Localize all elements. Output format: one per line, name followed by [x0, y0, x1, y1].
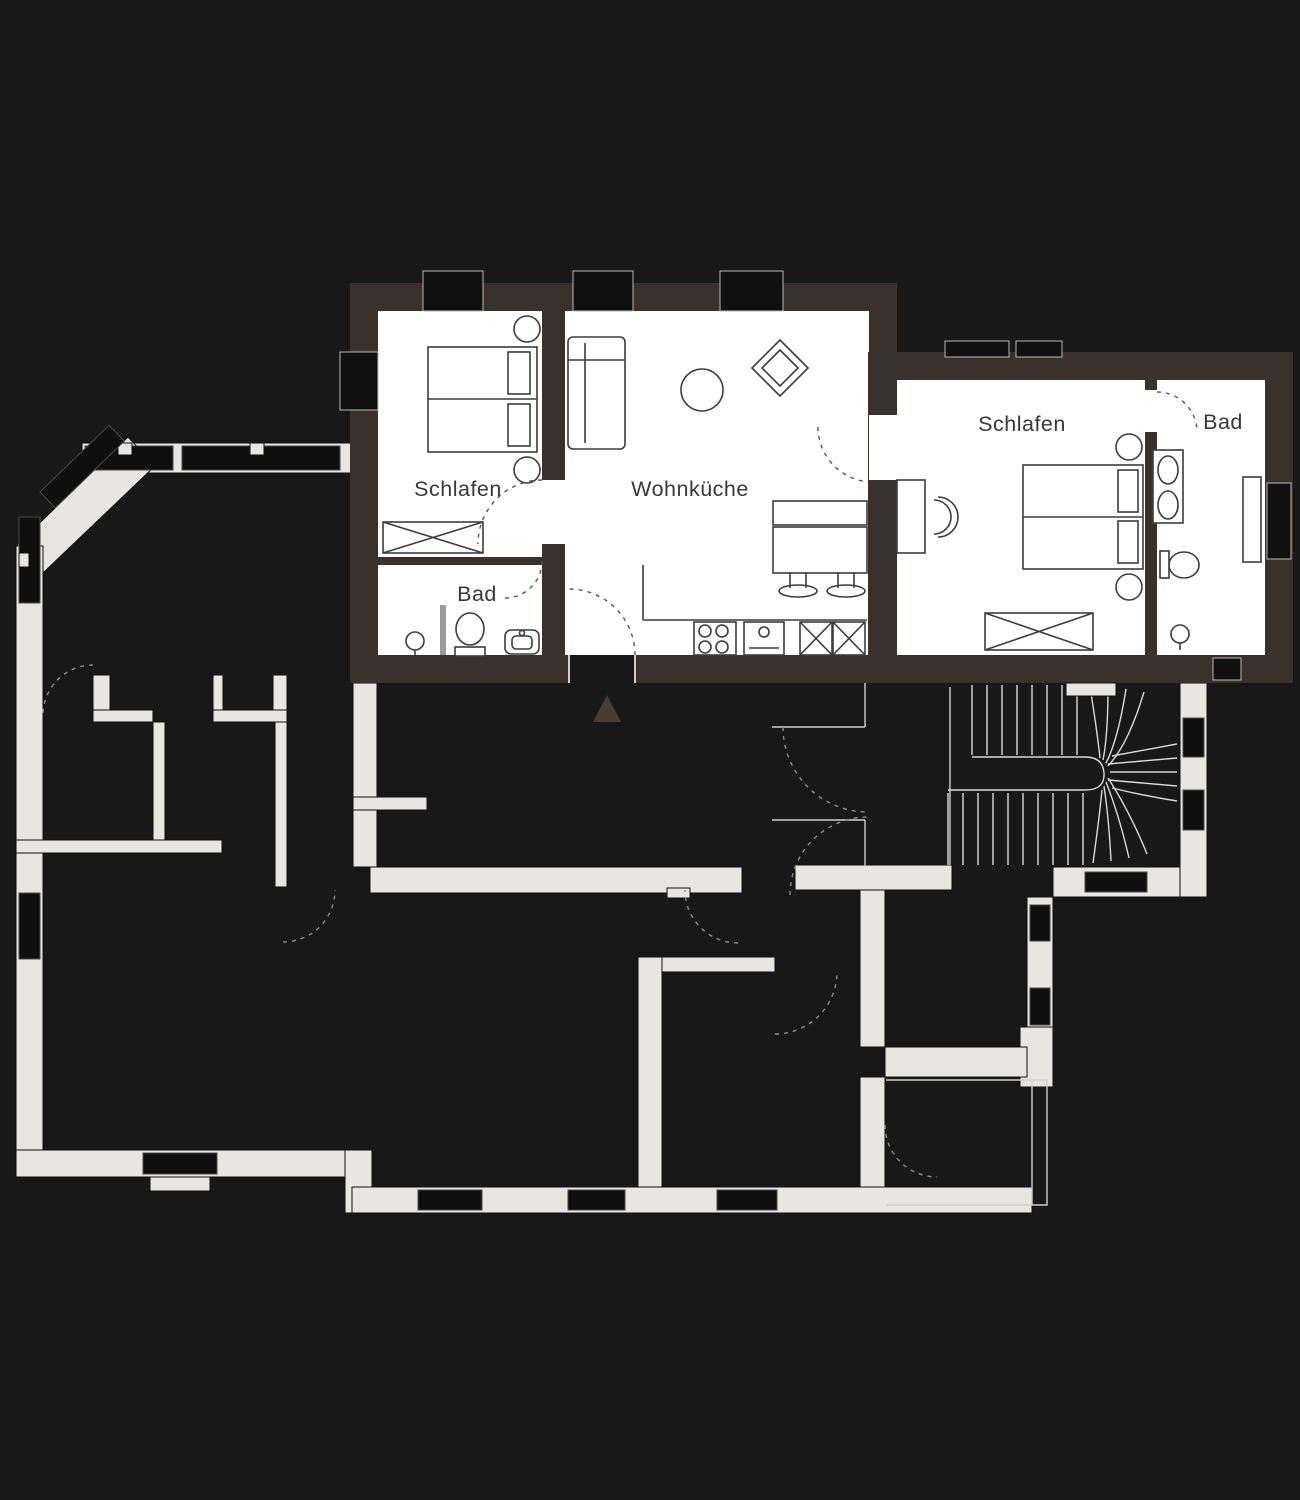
label-schlafen-top: Schlafen: [414, 477, 502, 501]
toilet-icon: [1160, 551, 1199, 578]
oven-icon: [744, 622, 784, 655]
sofa-icon: [568, 337, 625, 449]
entrance-opening: [569, 655, 635, 683]
label-schlafen-right: Schlafen: [978, 412, 1066, 436]
floorplan-canvas: Schlafen Wohnküche Bad: [0, 0, 1300, 1500]
partition-bar: [440, 605, 446, 655]
label-bad-top: Bad: [457, 582, 497, 606]
label-wohnkueche: Wohnküche: [631, 477, 749, 501]
wardrobe-right-icon: [985, 613, 1093, 650]
toilet-icon: [455, 613, 485, 656]
wall-divider-bad: [378, 557, 505, 565]
apartment-right: Schlafen Bad: [868, 341, 1293, 696]
door-opening-right-entry: [869, 415, 897, 480]
label-bad-right: Bad: [1203, 410, 1243, 434]
cabinet-icons: [800, 622, 865, 655]
vanity-counter: [1153, 450, 1183, 523]
apartment-top: Schlafen Wohnküche Bad: [340, 271, 928, 683]
floorplan-page: Schlafen Wohnküche Bad: [0, 0, 1300, 1500]
stove-icon: [694, 622, 736, 655]
wardrobe-icon: [383, 522, 483, 553]
door-opening-schlafen: [542, 480, 565, 544]
sink-icon: [505, 630, 539, 654]
wall-divider-right-top: [1145, 380, 1157, 390]
